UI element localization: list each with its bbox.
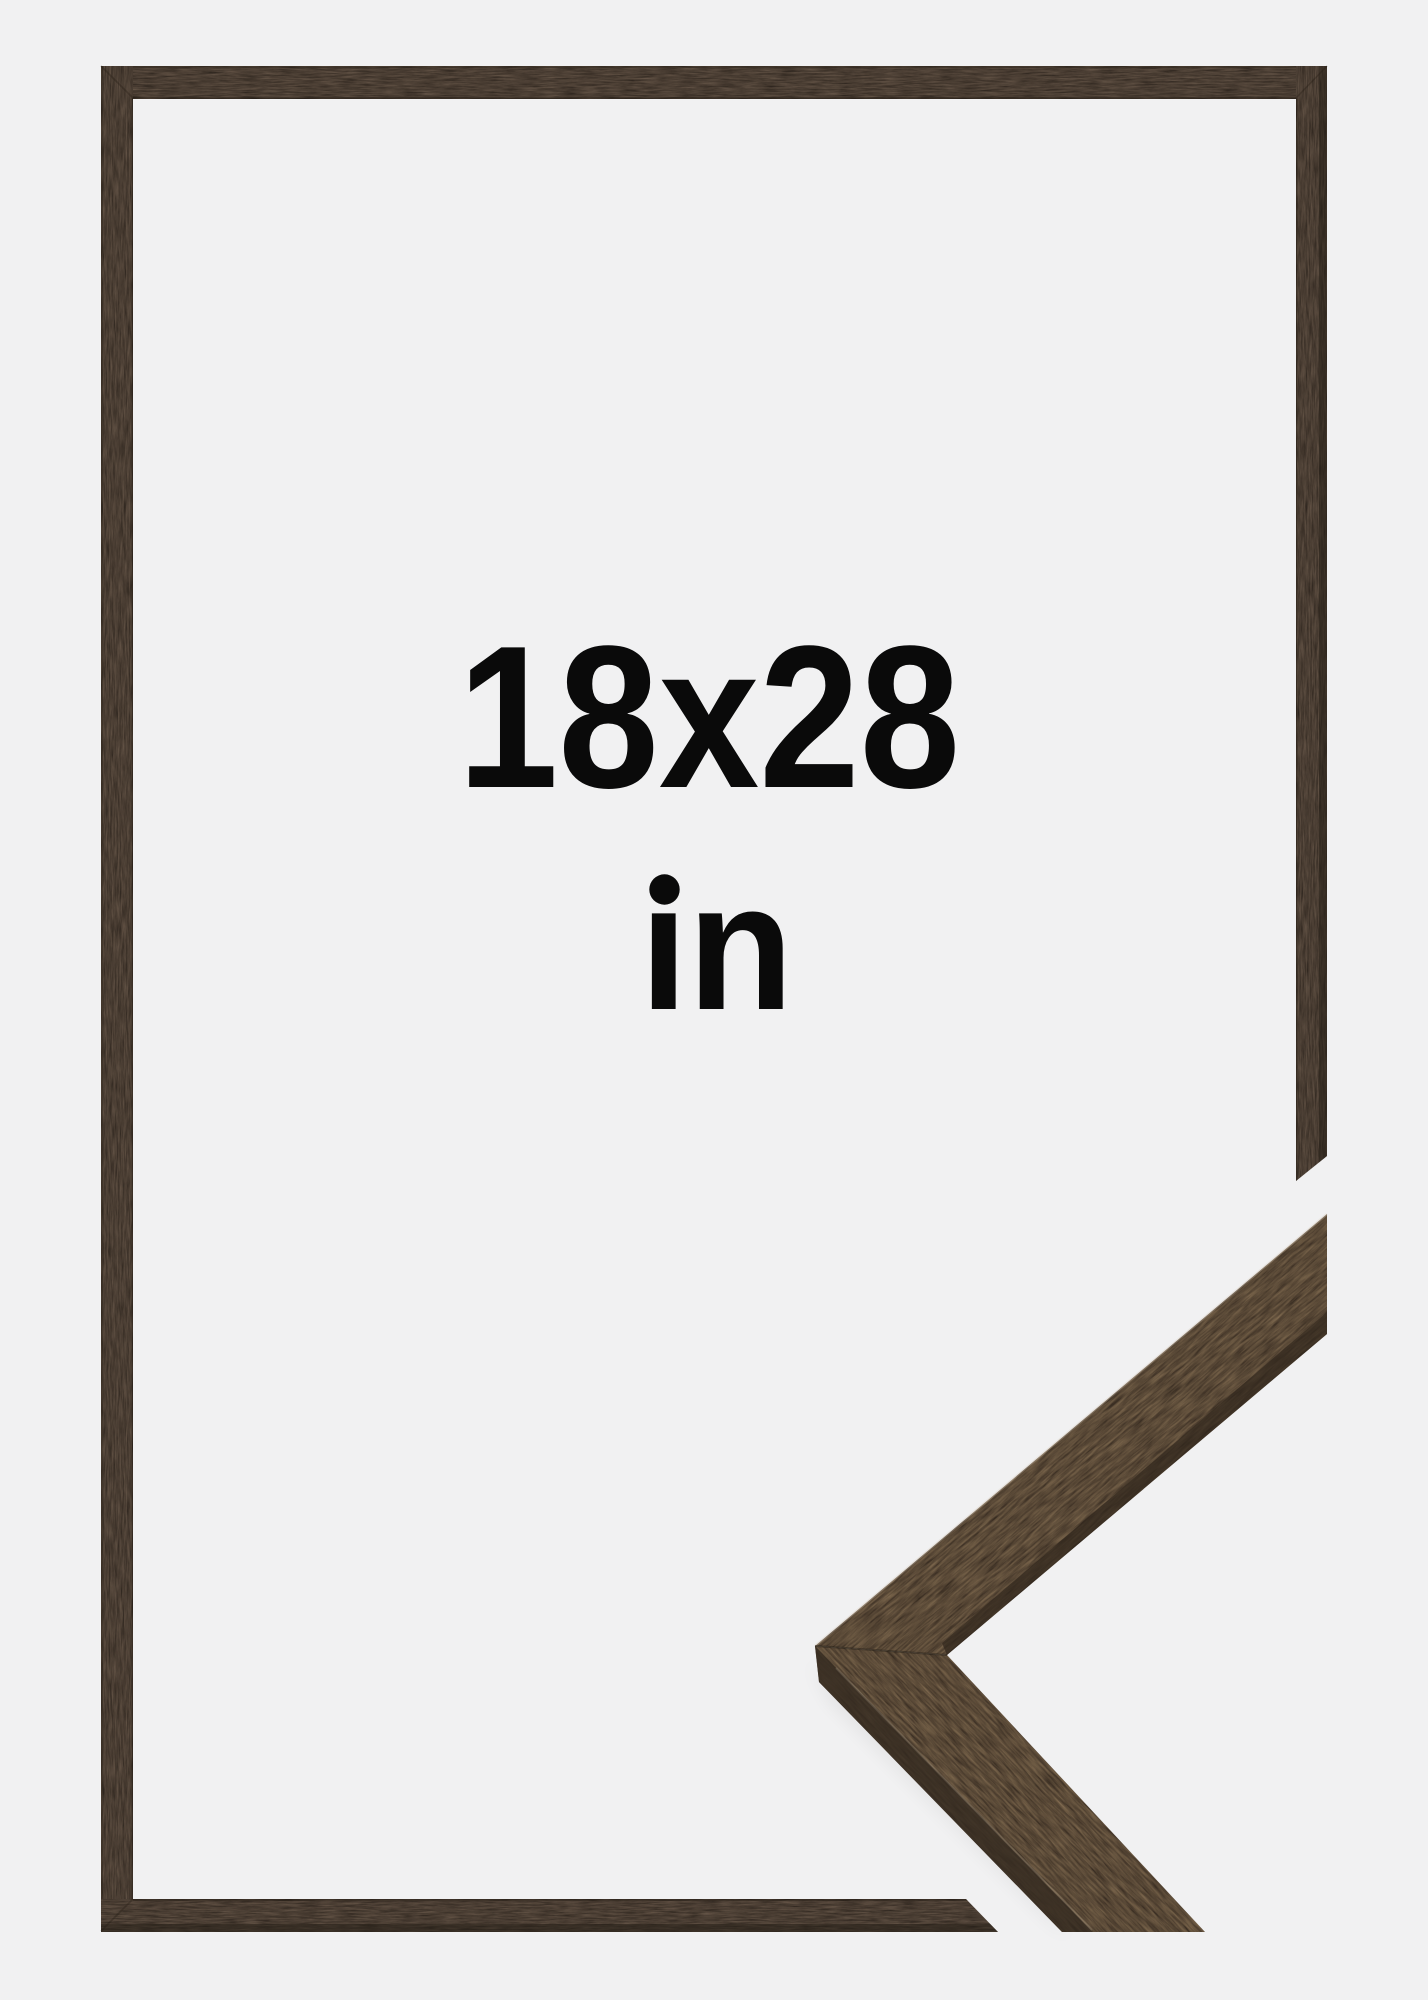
svg-text:18x28: 18x28 — [458, 603, 960, 830]
